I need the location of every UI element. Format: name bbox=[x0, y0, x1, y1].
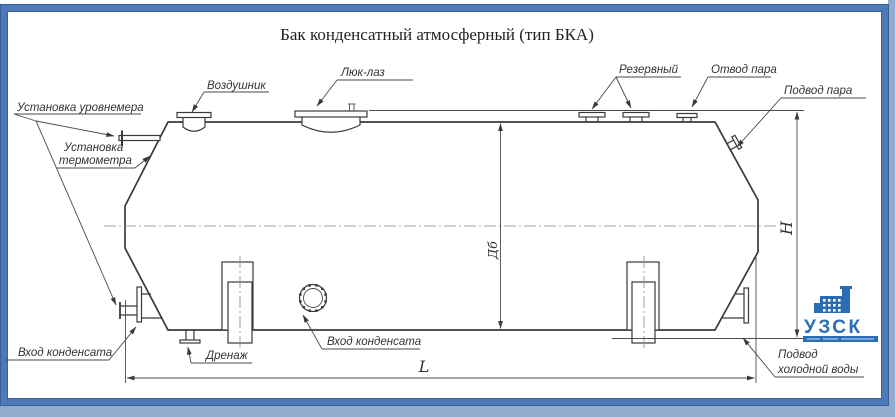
callout-manhole: Люк-лаз bbox=[340, 67, 385, 79]
callout-steam-outlet: Отвод пара bbox=[711, 64, 777, 76]
uzsk-logo: УЗСК bbox=[803, 286, 878, 342]
uzsk-logo-text: УЗСК bbox=[804, 317, 863, 338]
manhole-nozzle bbox=[295, 104, 367, 132]
callout-reserve: Резервный bbox=[619, 64, 679, 76]
callout-air-vent: Воздушник bbox=[207, 80, 266, 92]
callout-drain: Дренаж bbox=[204, 350, 249, 362]
dimension-diameter-label: Дб bbox=[485, 241, 500, 260]
dimension-length-label: L bbox=[418, 357, 430, 376]
dimension-height-label: H bbox=[777, 220, 796, 236]
uzsk-factory-icon bbox=[814, 286, 852, 313]
support-left bbox=[222, 256, 253, 350]
callout-steam-supply: Подвод пара bbox=[784, 85, 852, 97]
callout-thermometer-line1: Установка bbox=[63, 142, 123, 154]
reserve-nozzle-1 bbox=[579, 113, 605, 123]
callout-cold-water-line1: Подвод bbox=[778, 349, 818, 361]
callout-thermometer-line2: термометра bbox=[59, 155, 132, 167]
callout-condensate-inlet-center: Вход конденсата bbox=[327, 336, 421, 348]
callout-cold-water-line2: холодной воды bbox=[777, 364, 859, 376]
drawing-page: { "drawing": { "title": "Бак конденсатны… bbox=[0, 0, 895, 417]
thermometer-fitting bbox=[119, 131, 160, 147]
condensate-inlet-flange bbox=[299, 284, 327, 312]
reserve-nozzle-2 bbox=[623, 113, 649, 123]
tank-technical-drawing: Бак конденсатный атмосферный (тип БКА) bbox=[0, 0, 895, 417]
support-right bbox=[627, 256, 659, 350]
drawing-title: Бак конденсатный атмосферный (тип БКА) bbox=[280, 25, 594, 44]
drain-nozzle bbox=[180, 330, 200, 343]
callout-level-gauge: Установка уровнемера bbox=[16, 102, 144, 114]
callout-condensate-inlet-left: Вход конденсата bbox=[18, 347, 112, 359]
dimension-length: L bbox=[126, 257, 757, 383]
